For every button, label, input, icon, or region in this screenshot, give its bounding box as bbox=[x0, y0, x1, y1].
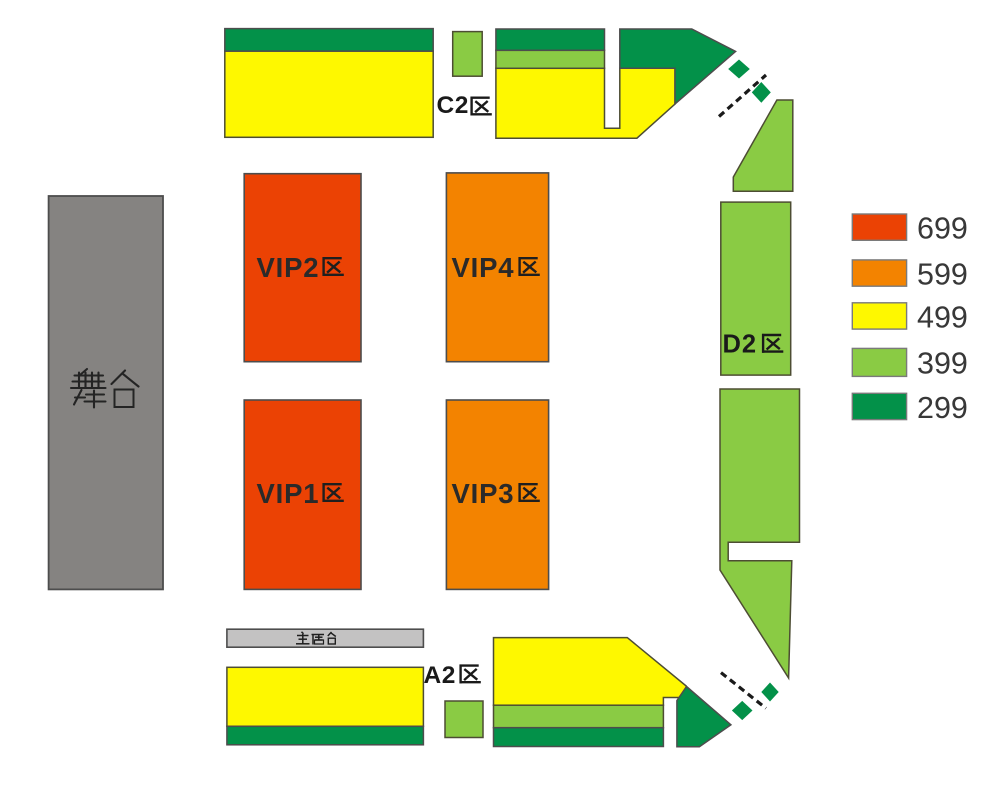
svg-text:VIP2: VIP2 bbox=[257, 252, 320, 283]
svg-text:299: 299 bbox=[917, 391, 968, 425]
svg-text:VIP3: VIP3 bbox=[452, 478, 515, 509]
svg-text:VIP4: VIP4 bbox=[452, 252, 515, 283]
svg-text:A2: A2 bbox=[424, 662, 456, 689]
svg-text:VIP1: VIP1 bbox=[257, 478, 320, 509]
svg-text:699: 699 bbox=[917, 212, 968, 246]
svg-text:D2: D2 bbox=[723, 331, 758, 359]
svg-text:499: 499 bbox=[917, 301, 968, 335]
svg-text:599: 599 bbox=[917, 258, 968, 292]
svg-text:399: 399 bbox=[917, 347, 968, 381]
svg-text:C2: C2 bbox=[437, 92, 469, 119]
